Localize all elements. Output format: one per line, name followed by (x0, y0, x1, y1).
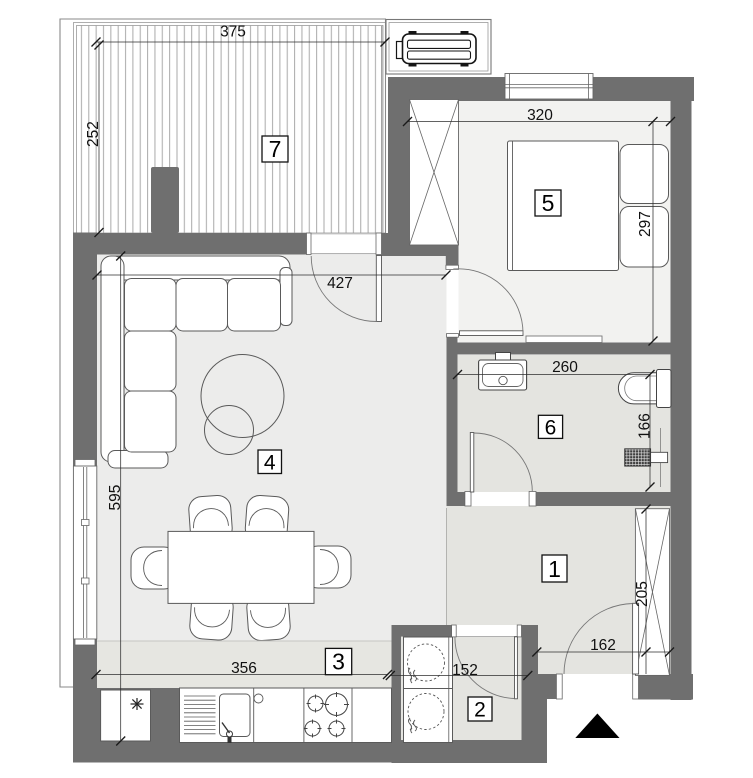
svg-text:427: 427 (327, 275, 353, 292)
svg-text:152: 152 (452, 662, 478, 679)
svg-text:375: 375 (220, 24, 246, 41)
svg-text:356: 356 (231, 660, 257, 677)
svg-text:6: 6 (545, 417, 557, 440)
svg-text:260: 260 (552, 359, 578, 376)
svg-text:2: 2 (474, 699, 486, 722)
svg-text:595: 595 (107, 485, 124, 511)
svg-text:166: 166 (637, 413, 654, 439)
svg-text:5: 5 (542, 190, 555, 216)
svg-text:252: 252 (85, 121, 102, 147)
svg-text:4: 4 (264, 452, 276, 475)
svg-text:205: 205 (634, 581, 651, 607)
svg-text:297: 297 (637, 211, 654, 237)
svg-text:162: 162 (590, 637, 616, 654)
svg-text:3: 3 (332, 649, 345, 675)
svg-text:1: 1 (548, 556, 561, 582)
svg-text:7: 7 (269, 136, 282, 162)
svg-text:320: 320 (527, 107, 553, 124)
